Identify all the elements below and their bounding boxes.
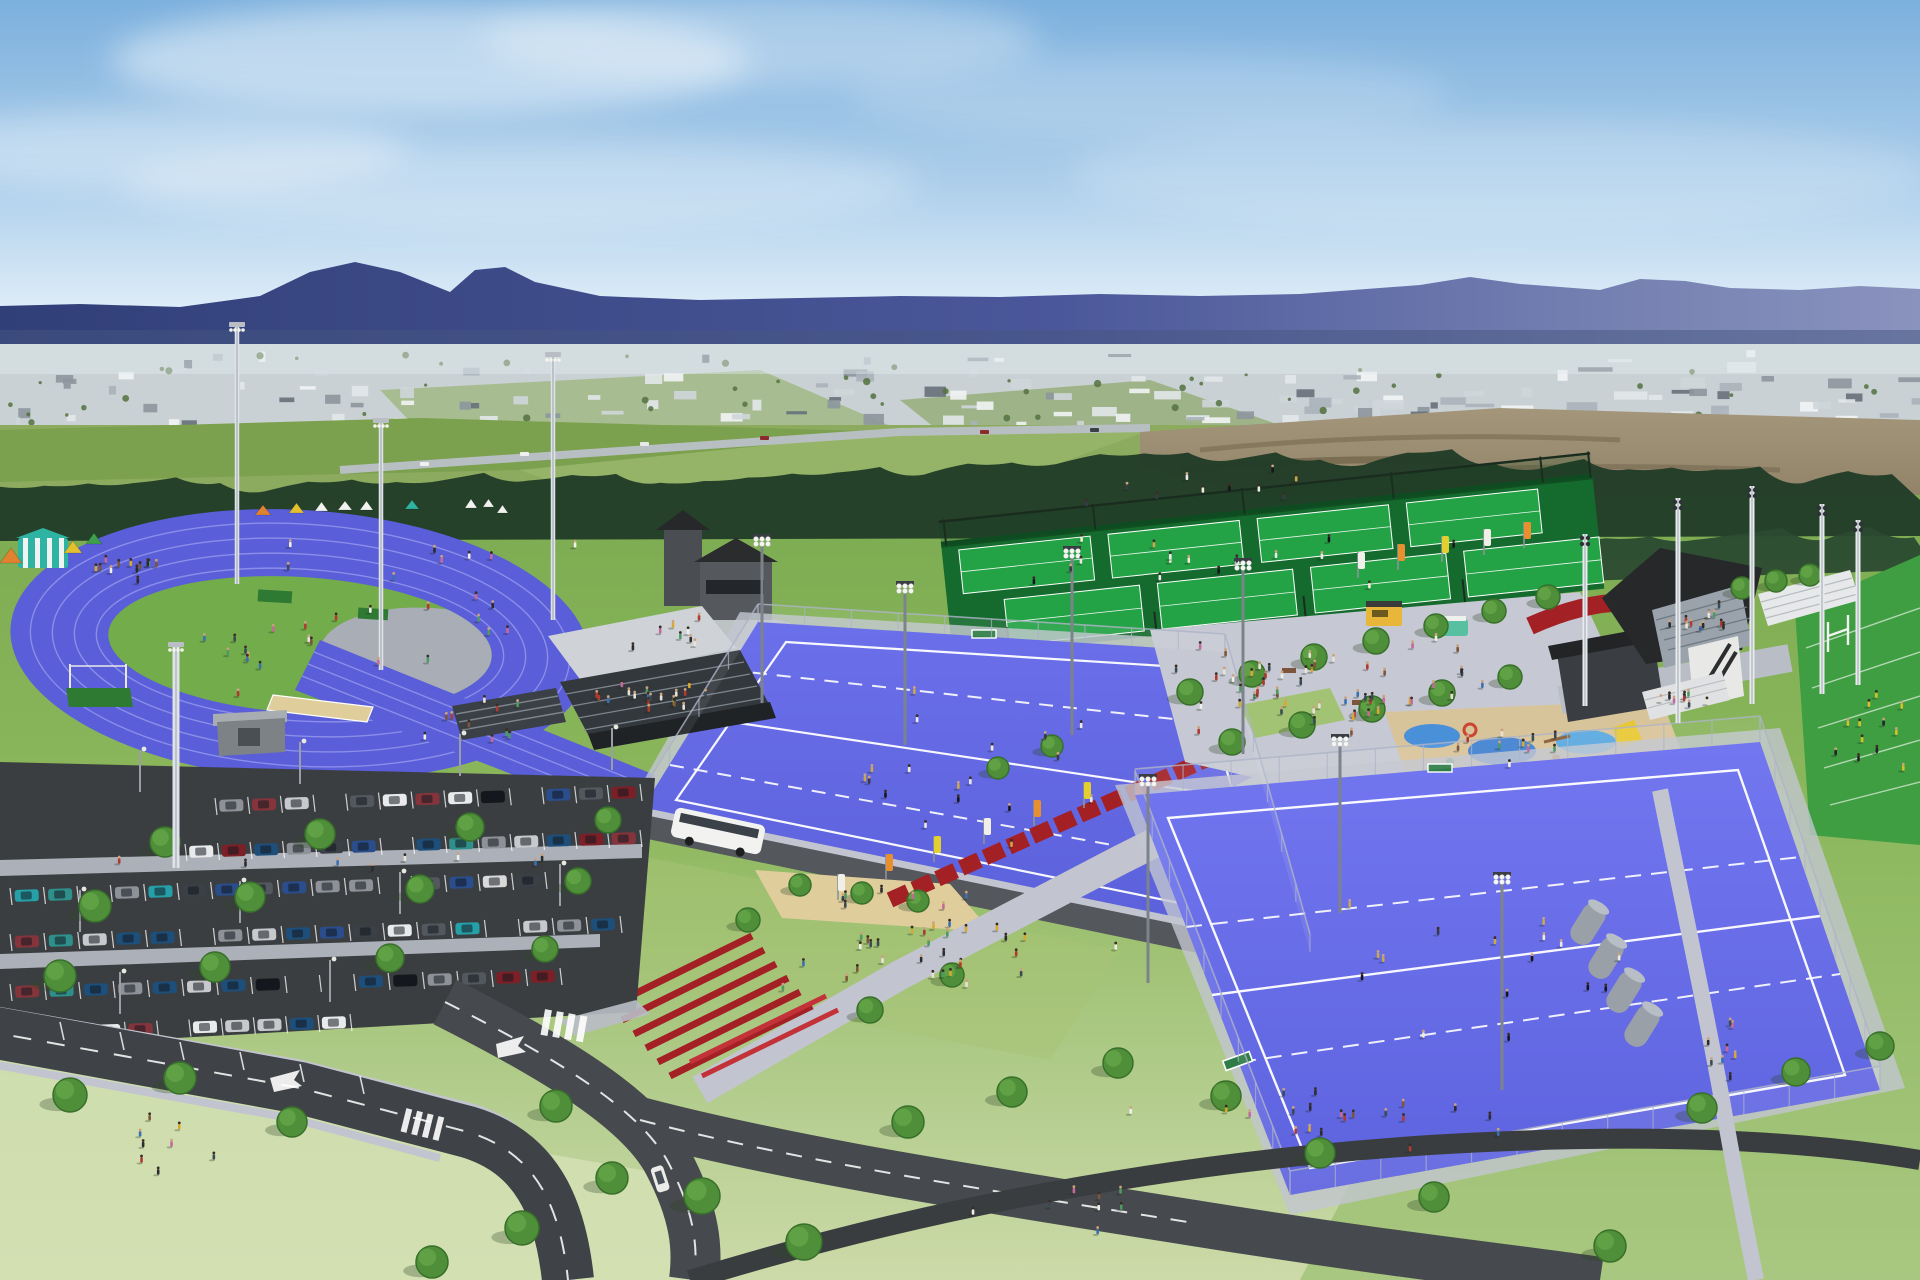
person-head [942, 969, 945, 972]
person-body [1409, 1146, 1412, 1152]
person-shadow [488, 608, 494, 610]
person-body [1366, 664, 1369, 670]
person-shadow [675, 639, 681, 641]
tree-highlight [378, 946, 393, 961]
person-head [1356, 689, 1359, 692]
tree-highlight [1421, 1184, 1438, 1201]
person-body [867, 938, 870, 944]
person-body [1706, 699, 1709, 705]
person-shadow [1020, 940, 1026, 942]
person-body [1668, 694, 1671, 700]
person-shadow [1373, 714, 1379, 716]
floodlight-lamp [1247, 561, 1252, 566]
distant-building [1720, 383, 1742, 391]
tree-highlight [81, 892, 99, 910]
distant-building [1054, 412, 1072, 416]
person-shadow [151, 567, 157, 569]
person-shadow [953, 802, 959, 804]
tree-highlight [1596, 1232, 1614, 1250]
parked-car [182, 884, 206, 897]
person-head [1618, 952, 1621, 955]
person-body [440, 557, 443, 563]
person-body [1688, 702, 1691, 708]
person-shadow [1305, 1131, 1311, 1133]
person-head [155, 559, 158, 562]
parked-car [252, 798, 276, 811]
person-shadow [1221, 1112, 1227, 1114]
person-head [1383, 668, 1386, 671]
person-head [660, 692, 663, 695]
person-head [1314, 1087, 1317, 1090]
person-shadow [1485, 1119, 1491, 1121]
floodlight-lamp [760, 542, 765, 547]
person-shadow [132, 572, 138, 574]
car-glass [563, 921, 574, 929]
tree-highlight [1179, 681, 1193, 695]
person-body [1224, 651, 1227, 657]
person-head [1217, 566, 1220, 569]
person-body [1847, 720, 1850, 726]
tree-highlight [853, 884, 865, 896]
person-shadow [1069, 1193, 1075, 1195]
person-shadow [919, 935, 925, 937]
person-shadow [1309, 724, 1315, 726]
person-head [880, 885, 883, 888]
person-head [142, 1139, 145, 1142]
parked-car [193, 1021, 217, 1034]
person-shadow [1076, 563, 1082, 565]
person-shadow [1348, 1117, 1354, 1119]
person-head [1215, 672, 1218, 675]
person-body [1321, 554, 1324, 560]
person-body [1553, 746, 1556, 752]
floodlight-lamp [1823, 512, 1827, 516]
person-head [247, 651, 250, 654]
person-shadow [840, 898, 846, 900]
person-shadow [138, 1147, 144, 1149]
car-glass [502, 973, 513, 981]
person-shadow [864, 783, 870, 785]
tree-highlight [738, 910, 751, 923]
person-shadow [285, 547, 291, 549]
floodlight-lamp [903, 584, 908, 589]
person-head [148, 1112, 151, 1115]
person-shadow [268, 631, 274, 633]
car-glass [322, 882, 333, 890]
person-body [1875, 693, 1878, 699]
tree-highlight [408, 877, 423, 892]
floodlight-lamp [1586, 536, 1590, 540]
person-body [1508, 762, 1511, 768]
person-head [607, 695, 610, 698]
distant-building [1092, 407, 1117, 416]
person-body [1344, 699, 1347, 705]
person-head [1072, 1185, 1075, 1188]
person-body [688, 683, 691, 689]
person-shadow [1714, 608, 1720, 610]
floodlight-lamp [897, 589, 902, 594]
person-shadow [945, 927, 951, 929]
person-head [287, 562, 290, 565]
person-shadow [1345, 907, 1351, 909]
person-shadow [1086, 802, 1092, 804]
person-head [1352, 712, 1355, 715]
person-body [142, 1142, 145, 1148]
person-shadow [1247, 676, 1253, 678]
floodlight-lamp [1152, 782, 1157, 787]
person-head [877, 938, 880, 941]
person-head [1119, 1186, 1122, 1189]
person-head [957, 794, 960, 797]
car-glass [260, 845, 271, 853]
person-body [1377, 953, 1380, 959]
person-head [574, 540, 577, 543]
person-head [1120, 1202, 1123, 1205]
person-head [672, 695, 675, 698]
person-head [1498, 741, 1501, 744]
person-body [1258, 664, 1261, 670]
person-head [203, 633, 206, 636]
person-body [949, 971, 952, 977]
person-head [1250, 668, 1253, 671]
person-shadow [283, 570, 289, 572]
person-shadow [1271, 558, 1277, 560]
person-body [920, 957, 923, 963]
car-glass [488, 838, 499, 846]
person-shadow [1364, 716, 1370, 718]
distant-building [816, 383, 828, 387]
person-shadow [945, 976, 951, 978]
distant-tree [28, 419, 34, 425]
person-body [647, 706, 650, 712]
parked-car [286, 927, 310, 940]
floodlight-lamp [1817, 506, 1821, 510]
person-head [679, 631, 682, 634]
person-head [1008, 803, 1011, 806]
person-body [782, 985, 785, 991]
person-shadow [126, 566, 132, 568]
parked-car [49, 934, 73, 947]
person-body [487, 630, 490, 636]
car-glass [21, 891, 32, 899]
distant-building [752, 400, 761, 411]
car-glass [585, 789, 596, 797]
person-body [1722, 624, 1725, 630]
person-head [931, 970, 934, 973]
person-body [1531, 956, 1534, 962]
person-shadow [1891, 735, 1897, 737]
person-shadow [860, 781, 866, 783]
person-shadow [223, 655, 229, 657]
person-shadow [1264, 671, 1270, 673]
person-body [649, 695, 652, 701]
person-body [1507, 1035, 1510, 1041]
person-head [1228, 483, 1231, 486]
person-shadow [1214, 573, 1220, 575]
person-body [1262, 680, 1265, 686]
person-head [1004, 933, 1007, 936]
floodlight-lamp [1146, 782, 1151, 787]
person-shadow [420, 739, 426, 741]
person-shadow [1831, 755, 1837, 757]
person-body [991, 745, 994, 751]
banner-flag [1442, 536, 1449, 553]
floodlight-lamp [1580, 536, 1584, 540]
person-body [468, 722, 471, 728]
person-head [1377, 950, 1380, 953]
car-glass [585, 835, 596, 843]
person-head [1295, 473, 1298, 476]
person-shadow [101, 563, 107, 565]
car-glass [288, 883, 299, 891]
person-body [1232, 677, 1235, 683]
car-glass [360, 927, 371, 935]
person-body [457, 855, 460, 861]
person-shadow [255, 669, 261, 671]
car-glass [399, 976, 410, 984]
person-head [506, 625, 509, 628]
person-head [1367, 708, 1370, 711]
person-shadow [471, 599, 477, 601]
floodlight-lamp [1152, 777, 1157, 782]
parked-car [611, 786, 635, 799]
person-head [1299, 677, 1302, 680]
person-body [1702, 623, 1705, 629]
person-head [1846, 718, 1849, 721]
person-body [1283, 494, 1286, 500]
floodlight-lamp [377, 424, 381, 428]
person-head [1858, 718, 1861, 721]
distant-building [351, 403, 364, 408]
person-shadow [1405, 1151, 1411, 1153]
marquee-stripe [47, 538, 52, 568]
person-head [491, 734, 494, 737]
person-head [1707, 1037, 1710, 1040]
person-head [911, 926, 914, 929]
floodlight-lamp [1580, 542, 1584, 546]
person-head [1402, 1099, 1405, 1102]
person-body [969, 779, 972, 785]
person-body [673, 701, 676, 707]
floodlight-lamp [766, 537, 771, 542]
person-head [1010, 839, 1013, 842]
floodlight-lamp [1506, 880, 1511, 885]
parked-car [448, 792, 472, 805]
person-head [1235, 554, 1238, 557]
person-head [336, 857, 339, 860]
person-head [1256, 686, 1259, 689]
person-head [1308, 1124, 1311, 1127]
person-body [445, 714, 448, 720]
person-body [1527, 746, 1530, 752]
banner-flag [1034, 800, 1041, 817]
distant-building [1465, 404, 1494, 407]
person-head [1454, 1103, 1457, 1106]
person-body [534, 860, 537, 866]
person-shadow [1171, 672, 1177, 674]
person-shadow [1725, 1025, 1731, 1027]
parked-car [388, 924, 412, 937]
person-head [1328, 534, 1331, 537]
tree-highlight [791, 876, 803, 888]
person-head [1713, 610, 1716, 613]
person-shadow [1211, 680, 1217, 682]
person-body [1225, 1107, 1228, 1113]
person-head [672, 620, 675, 623]
distant-building [143, 404, 157, 413]
person-body [1129, 1109, 1132, 1115]
person-head [310, 637, 313, 640]
parked-car [481, 790, 505, 803]
person-shadow [1539, 940, 1545, 942]
person-body [392, 575, 395, 581]
person-head [1699, 623, 1702, 626]
floodlight-lamp [1673, 506, 1677, 510]
person-body [227, 650, 230, 656]
person-head [868, 776, 871, 779]
distant-tree [1189, 377, 1194, 382]
person-head [1156, 491, 1159, 494]
cloud [1070, 120, 1920, 230]
distant-building [732, 414, 750, 420]
parked-car [116, 932, 140, 945]
person-body [1015, 951, 1018, 957]
person-shadow [1341, 704, 1347, 706]
tree-highlight [458, 815, 473, 830]
person-shadow [137, 1162, 143, 1164]
parked-car [257, 1018, 281, 1031]
distant-building [1717, 391, 1729, 399]
person-shadow [1249, 699, 1255, 701]
person-body [1313, 718, 1316, 724]
person-body [427, 657, 430, 663]
person-shadow [1704, 618, 1710, 620]
person-head [923, 927, 926, 930]
floodlight-lamp [233, 328, 237, 332]
distant-building [1046, 393, 1054, 400]
person-body [1159, 575, 1162, 581]
person-head [859, 941, 862, 944]
tree-highlight [859, 999, 873, 1013]
person-head [864, 773, 867, 776]
parked-car [320, 926, 344, 939]
person-head [704, 689, 707, 692]
parked-car [496, 971, 520, 984]
person-body [1522, 741, 1525, 747]
distant-tree [1007, 379, 1010, 382]
person-shadow [1310, 667, 1316, 669]
floodlight-lamp [553, 358, 557, 362]
person-body [1282, 1090, 1285, 1096]
person-head [844, 900, 847, 903]
person-head [1253, 691, 1256, 694]
floodlight-lamp [229, 328, 233, 332]
person-head [942, 901, 945, 904]
distant-building [977, 402, 994, 410]
person-body [675, 691, 678, 697]
person-body [1734, 1053, 1737, 1059]
person-body [1382, 956, 1385, 962]
person-body [1560, 941, 1563, 947]
high-jump-mat [66, 688, 133, 707]
floodlight-lamp [760, 537, 765, 542]
person-shadow [1855, 726, 1861, 728]
person-body [1452, 542, 1455, 548]
car-glass [520, 837, 531, 845]
distant-tree [1730, 393, 1734, 397]
person-shadow [938, 977, 944, 979]
person-body [155, 561, 158, 567]
person-shadow [1007, 847, 1013, 849]
person-body [684, 691, 687, 697]
distant-tree [1871, 389, 1877, 395]
person-shadow [1378, 962, 1384, 964]
person-head [1718, 600, 1721, 603]
person-shadow [1219, 674, 1225, 676]
person-body [1868, 702, 1871, 708]
person-shadow [701, 697, 707, 699]
person-head [1553, 744, 1556, 747]
equipment-mat [258, 589, 293, 603]
person-body [1708, 613, 1711, 619]
parked-car [48, 888, 72, 901]
person-head [1281, 671, 1284, 674]
person-shadow [961, 899, 967, 901]
person-head [689, 634, 692, 637]
person-head [682, 702, 685, 705]
person-body [1481, 682, 1484, 688]
distant-tree [1637, 383, 1643, 389]
person-shadow [1898, 770, 1904, 772]
person-body [1352, 1112, 1355, 1118]
person-shadow [1669, 703, 1675, 705]
person-shadow [1871, 698, 1877, 700]
distant-building [1838, 399, 1855, 402]
person-body [377, 659, 380, 665]
person-body [965, 982, 968, 988]
person-head [490, 551, 493, 554]
person-head [99, 563, 102, 566]
person-shadow [91, 571, 97, 573]
person-body [110, 568, 113, 574]
person-body [1731, 1023, 1734, 1029]
person-body [246, 656, 249, 662]
person-body [505, 731, 508, 737]
person-shadow [145, 1120, 151, 1122]
person-shadow [694, 620, 700, 622]
person-head [782, 983, 785, 986]
person-body [628, 690, 631, 696]
person-head [1248, 1109, 1251, 1112]
person-head [1875, 745, 1878, 748]
person-head [841, 893, 844, 896]
person-body [1368, 583, 1371, 589]
person-shadow [965, 784, 971, 786]
person-body [932, 924, 935, 930]
person-head [157, 1166, 160, 1169]
parked-car [352, 840, 376, 853]
distant-car [640, 442, 649, 446]
person-body [140, 1157, 143, 1163]
person-head [802, 958, 805, 961]
person-body [1364, 695, 1367, 701]
person-body [884, 792, 887, 798]
person-shadow [1601, 991, 1607, 993]
person-body [1382, 697, 1385, 703]
person-shadow [855, 949, 861, 951]
person-shadow [1449, 547, 1455, 549]
person-body [698, 615, 701, 621]
